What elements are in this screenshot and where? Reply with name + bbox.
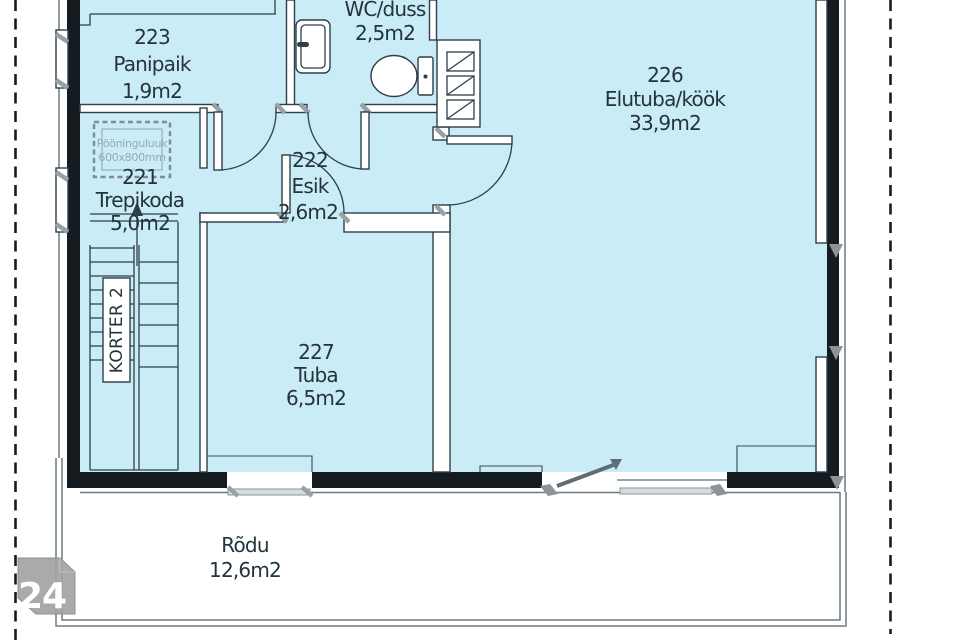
wall-esik-bottom-left bbox=[200, 213, 286, 222]
window-tuba bbox=[227, 472, 312, 488]
door-leaf-panipaik bbox=[214, 112, 222, 170]
apartment-label: KORTER 2 bbox=[107, 287, 127, 374]
room-226-area: 33,9m2 bbox=[629, 111, 701, 135]
shaft-hatched-boxes bbox=[447, 52, 474, 119]
wall-trepikoda-esik-upper bbox=[200, 108, 207, 168]
floor-plan-drawing: KORTER 2 Pööninguluuk 600x800mm bbox=[0, 0, 960, 640]
room-222-number: 222 bbox=[292, 148, 328, 172]
room-226-number: 226 bbox=[647, 63, 683, 87]
toilet-bowl bbox=[371, 56, 417, 97]
room-rodu-name: Rõdu bbox=[221, 533, 268, 557]
room-wc-name: WC/duss bbox=[344, 0, 425, 21]
room-227-name: Tuba bbox=[293, 363, 338, 387]
window-tuba-sill bbox=[228, 489, 310, 495]
wall-223-wc-divider bbox=[287, 0, 295, 105]
attic-hatch-label-2: 600x800mm bbox=[98, 151, 165, 164]
wall-esik-top-a bbox=[80, 105, 218, 113]
balcony-door-opening bbox=[542, 472, 617, 488]
room-rodu-area: 12,6m2 bbox=[209, 558, 281, 582]
plot-marker-number: 24 bbox=[18, 576, 66, 617]
plot-marker: 24 bbox=[18, 558, 75, 617]
room-226-name: Elutuba/köök bbox=[605, 87, 727, 111]
room-221-area: 5,0m2 bbox=[110, 211, 170, 235]
room-221-number: 221 bbox=[122, 165, 158, 189]
wall-wc-right bbox=[430, 0, 437, 40]
wall-esik-top-c bbox=[365, 105, 437, 113]
room-221-name: Trepikoda bbox=[95, 188, 184, 212]
floor-plan-page: KORTER 2 Pööninguluuk 600x800mm bbox=[0, 0, 960, 640]
room-222-name: Esik bbox=[292, 174, 330, 198]
room-223-number: 223 bbox=[134, 25, 170, 49]
room-227-number: 227 bbox=[298, 340, 334, 364]
door-leaf-elutuba bbox=[447, 136, 512, 144]
ventilation-shaft bbox=[437, 40, 480, 127]
room-227-area: 6,5m2 bbox=[286, 386, 346, 410]
wall-tuba-elutuba-divider bbox=[433, 205, 450, 472]
window-right-1 bbox=[816, 0, 827, 243]
room-223-area: 1,9m2 bbox=[122, 79, 182, 103]
door-leaf-wc bbox=[361, 112, 369, 169]
attic-hatch-label-1: Pööninguluuk bbox=[97, 137, 168, 150]
wall-trepikoda-tuba bbox=[200, 213, 207, 472]
toilet-flush-button bbox=[424, 75, 428, 79]
shower-door-handle bbox=[297, 42, 309, 47]
wall-esik-bottom-right bbox=[344, 213, 450, 232]
room-222-area: 2,6m2 bbox=[278, 200, 338, 224]
room-wc-area: 2,5m2 bbox=[355, 21, 415, 45]
wall-left bbox=[67, 0, 80, 488]
window-right-2 bbox=[816, 357, 827, 472]
window-elutuba-sill bbox=[620, 488, 712, 494]
room-223-name: Panipaik bbox=[113, 52, 192, 76]
